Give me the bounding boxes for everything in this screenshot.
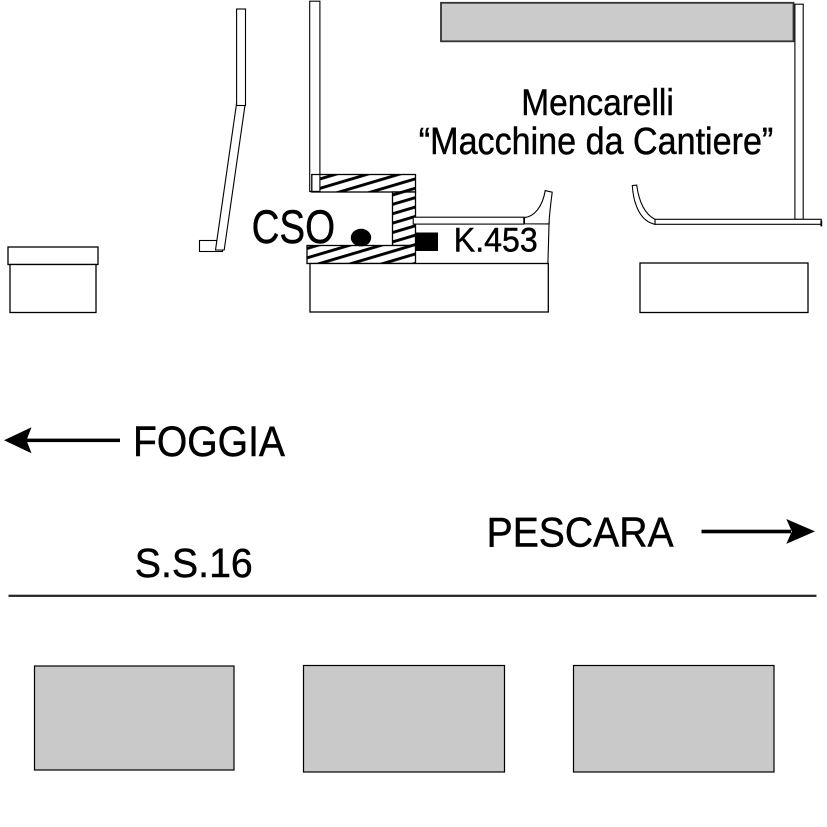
svg-text:PESCARA: PESCARA xyxy=(487,509,674,556)
svg-text:FOGGIA: FOGGIA xyxy=(133,418,285,466)
svg-text:“Macchine da Cantiere”: “Macchine da Cantiere” xyxy=(419,121,774,163)
svg-text:S.S.16: S.S.16 xyxy=(135,540,253,586)
svg-text:Mencarelli: Mencarelli xyxy=(521,82,674,123)
svg-text:CSO: CSO xyxy=(252,201,336,254)
svg-text:K.453: K.453 xyxy=(454,222,538,260)
